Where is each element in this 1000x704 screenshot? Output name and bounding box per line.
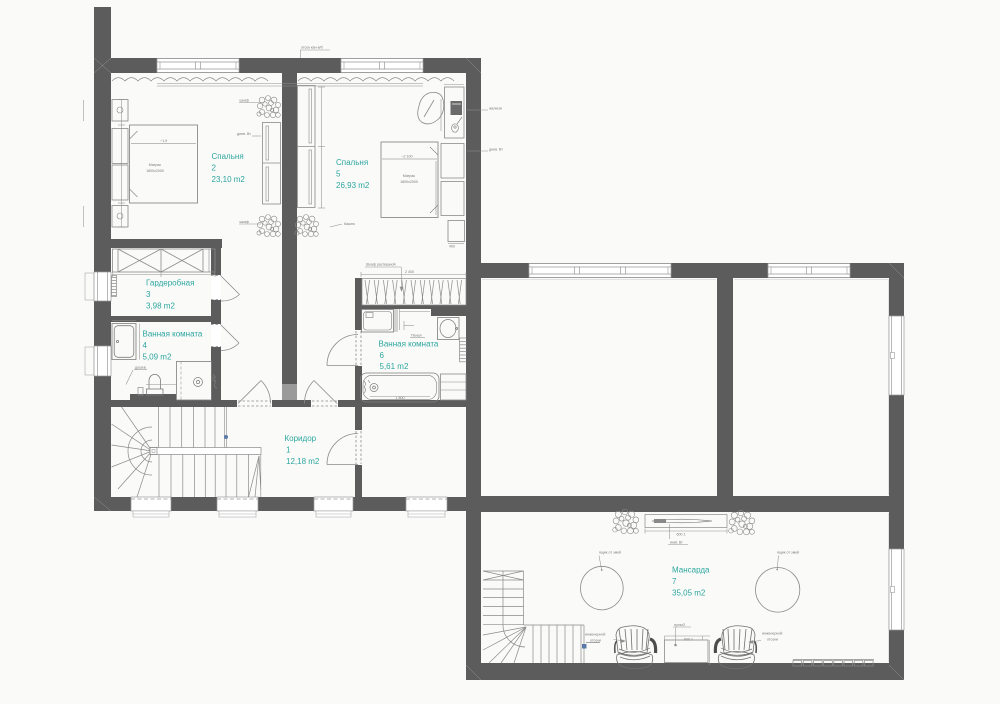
- svg-text:Шкаф распашной: Шкаф распашной: [366, 263, 396, 267]
- svg-text:600 1: 600 1: [677, 533, 686, 537]
- svg-text:днев. Вт: днев. Вт: [237, 132, 251, 136]
- svg-text:отсеки: отсеки: [590, 639, 601, 643]
- svg-text:3: 3: [146, 290, 151, 299]
- svg-text:шкаф: шкаф: [240, 220, 250, 224]
- svg-text:~2 100: ~2 100: [401, 155, 412, 159]
- svg-text:5: 5: [336, 170, 341, 179]
- svg-text:шкаф: шкаф: [240, 99, 250, 103]
- svg-text:2: 2: [212, 164, 217, 173]
- svg-text:1: 1: [286, 446, 291, 455]
- svg-text:ящик от змей: ящик от змей: [777, 551, 799, 555]
- svg-text:Матрас: Матрас: [403, 174, 416, 178]
- svg-text:отсеки: отсеки: [767, 638, 778, 642]
- svg-text:душев.: душев.: [135, 366, 147, 370]
- svg-text:35,05 m2: 35,05 m2: [672, 589, 706, 598]
- svg-text:12,18 m2: 12,18 m2: [286, 457, 320, 466]
- svg-text:инженерной: инженерной: [585, 633, 605, 637]
- svg-text:2 400: 2 400: [405, 270, 414, 274]
- svg-text:жалюзи: жалюзи: [489, 107, 502, 111]
- svg-text:5,61 m2: 5,61 m2: [380, 362, 409, 371]
- svg-text:Спальня: Спальня: [212, 152, 244, 161]
- svg-text:Ванная комната: Ванная комната: [143, 330, 203, 339]
- svg-text:ящик от змей: ящик от змей: [599, 551, 621, 555]
- svg-text:400: 400: [449, 245, 455, 249]
- svg-text:26,93 m2: 26,93 m2: [336, 181, 370, 190]
- svg-text:инвt. Вт: инвt. Вт: [670, 541, 683, 545]
- svg-text:7: 7: [672, 577, 677, 586]
- svg-text:6: 6: [380, 351, 385, 360]
- svg-text:пульт2: пульт2: [674, 623, 685, 627]
- svg-text:Мансарда: Мансарда: [672, 566, 710, 575]
- svg-text:Кашпо: Кашпо: [344, 222, 355, 226]
- svg-text:отсек кан-в/б: отсек кан-в/б: [301, 46, 323, 50]
- svg-text:~1,9: ~1,9: [160, 139, 167, 143]
- svg-text:4: 4: [143, 341, 148, 350]
- svg-text:1800х2000: 1800х2000: [400, 180, 418, 184]
- svg-text:Пенал: Пенал: [411, 334, 422, 338]
- svg-text:3,98 m2: 3,98 m2: [146, 302, 175, 311]
- svg-text:1800х2000: 1800х2000: [146, 169, 164, 173]
- svg-text:Спальня: Спальня: [336, 158, 368, 167]
- svg-text:5,09 m2: 5,09 m2: [143, 353, 172, 362]
- svg-text:Матрас: Матрас: [149, 163, 162, 167]
- svg-text:Ванная комната: Ванная комната: [379, 340, 439, 349]
- svg-text:23,10 m2: 23,10 m2: [212, 175, 246, 184]
- svg-text:Гардеробная: Гардеробная: [146, 279, 194, 288]
- svg-text:днев. Вт: днев. Вт: [489, 148, 503, 152]
- svg-text:инженерной: инженерной: [762, 632, 782, 636]
- svg-text:600 1: 600 1: [684, 638, 693, 642]
- svg-text:Коридор: Коридор: [285, 434, 317, 443]
